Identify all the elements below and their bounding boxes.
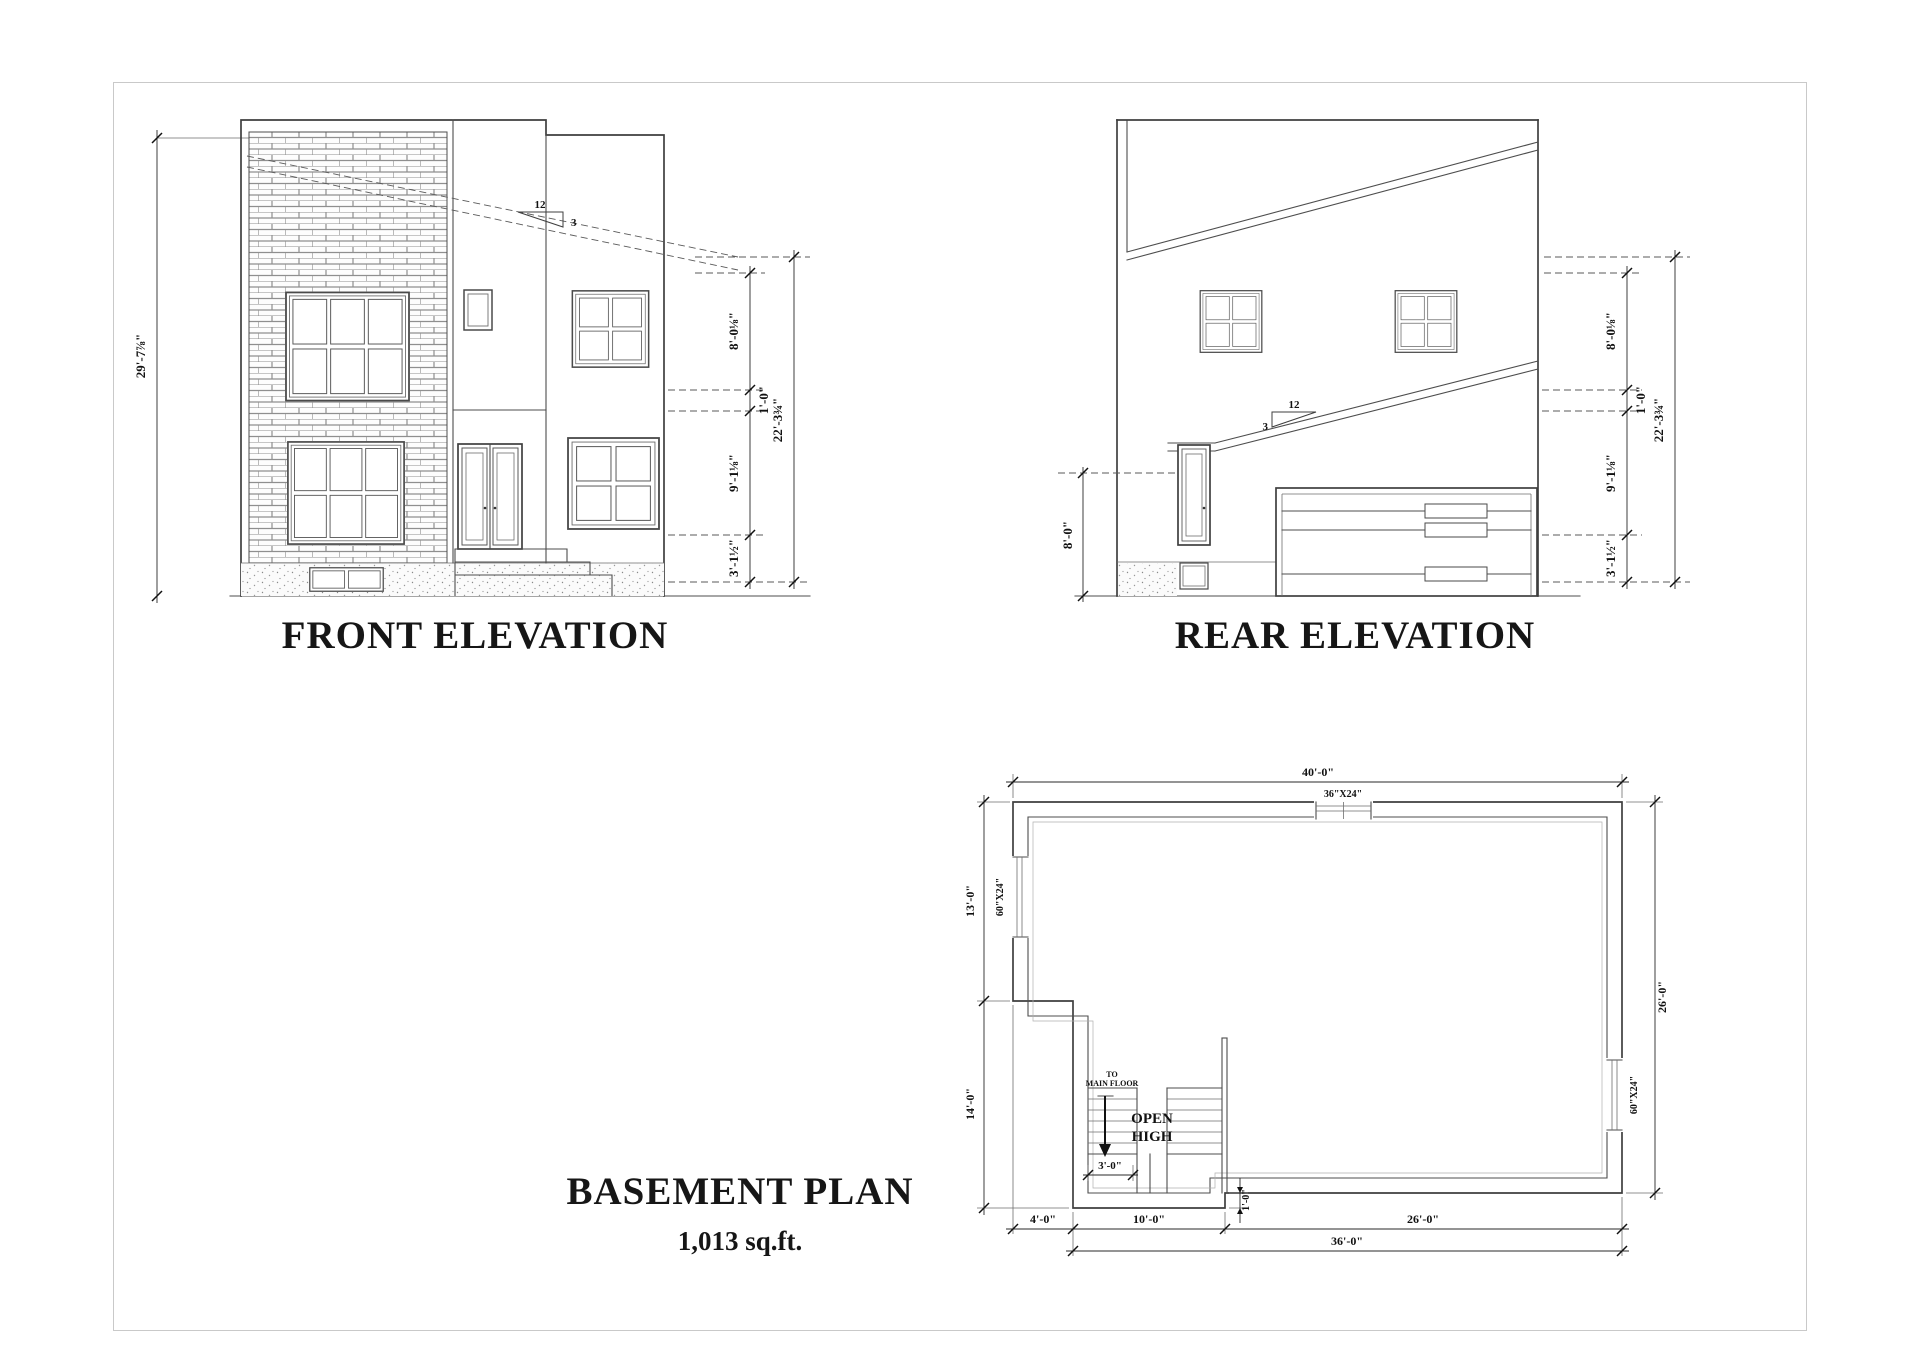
rear-slope-run: 3 xyxy=(1263,421,1269,433)
stairs-to-label-1: TO xyxy=(1106,1070,1117,1079)
front-window-upper-right xyxy=(572,290,650,368)
rear-elevation-drawing: 12 3 8'-0" 8'-0⅛" 1'-0" 9'-1⅛" 3'-1½" 22… xyxy=(1050,80,1750,640)
stairs-open-label-2: HIGH xyxy=(1132,1129,1173,1145)
rear-foundation xyxy=(1118,563,1177,596)
front-slope-rise: 12 xyxy=(535,199,547,211)
basement-area-label: 1,013 sq.ft. xyxy=(440,1228,1040,1255)
stairs-to-label-2: MAIN FLOOR xyxy=(1086,1079,1139,1088)
rear-elevation-title: REAR ELEVATION xyxy=(1030,616,1680,655)
stairs-open-label-1: OPEN xyxy=(1131,1111,1173,1127)
front-dim-overall: 22'-3¾" xyxy=(770,398,785,442)
rear-dim-floor-depth: 1'-0" xyxy=(1633,386,1648,414)
basement-window-top: 36"X24" xyxy=(1314,789,1373,819)
basement-left-lower-dim: 14'-0" xyxy=(963,1088,977,1120)
front-basement-window xyxy=(309,567,384,592)
basement-top-dim: 40'-0" xyxy=(1006,765,1629,798)
basement-bottom-dims: 4'-0" 10'-0" 26'-0" 36'-0" xyxy=(1006,1005,1629,1256)
front-window-lower-6pane xyxy=(287,441,405,545)
basement-depth-dim: 26'-0" xyxy=(1655,981,1669,1013)
front-window-small xyxy=(464,290,492,330)
front-window-upper-6pane xyxy=(285,291,410,401)
front-dim-upper-floor: 8'-0⅛" xyxy=(726,312,741,350)
rear-right-dims: 8'-0⅛" 1'-0" 9'-1⅛" 3'-1½" 22'-3¾" xyxy=(1542,250,1690,589)
rear-door-height-label: 8'-0" xyxy=(1060,521,1075,549)
front-foundation xyxy=(241,563,664,596)
rear-dim-foundation: 3'-1½" xyxy=(1603,539,1618,577)
basement-width-dim: 40'-0" xyxy=(1302,765,1334,779)
front-overall-height-label: 29'-7⅞" xyxy=(133,334,148,378)
basement-window-top-label: 36"X24" xyxy=(1324,789,1362,800)
rear-window-right xyxy=(1395,290,1458,353)
basement-left-upper-dim: 13'-0" xyxy=(963,885,977,917)
front-slope-run: 3 xyxy=(571,217,577,229)
front-overall-height-dim: 29'-7⅞" xyxy=(133,130,265,603)
front-elevation-drawing: 29'-7⅞" 12 3 xyxy=(110,80,870,640)
front-dim-floor-depth: 1'-0" xyxy=(756,386,771,414)
front-entry-door xyxy=(458,444,522,549)
rear-garage-door xyxy=(1276,488,1537,596)
basement-window-right-label: 60"X24" xyxy=(1629,1076,1640,1114)
rear-basement-window xyxy=(1180,563,1208,589)
basement-window-right: 60"X24" xyxy=(1605,1058,1640,1132)
basement-plan-title: BASEMENT PLAN xyxy=(440,1172,1040,1211)
basement-window-left-label: 60"X24" xyxy=(995,878,1006,916)
rear-dim-overall: 22'-3¾" xyxy=(1651,398,1666,442)
basement-bottom-seg3: 26'-0" xyxy=(1407,1212,1439,1226)
basement-bottom-overall: 36'-0" xyxy=(1331,1234,1363,1248)
front-window-lower-right xyxy=(567,437,660,530)
rear-window-left xyxy=(1200,290,1263,353)
front-roof-slope-marker: 12 3 xyxy=(518,199,577,229)
basement-plan-drawing: 36"X24" 60"X24" 60"X24" xyxy=(950,740,1740,1280)
basement-bottom-seg2: 10'-0" xyxy=(1133,1212,1165,1226)
basement-bottom-seg1: 4'-0" xyxy=(1030,1212,1056,1226)
front-dim-foundation: 3'-1½" xyxy=(726,539,741,577)
rear-door xyxy=(1178,445,1210,545)
rear-slope-rise: 12 xyxy=(1289,399,1301,411)
basement-right-dim: 26'-0" xyxy=(1626,795,1669,1200)
stair-width-dim: 3'-0" xyxy=(1098,1160,1122,1172)
basement-offset-dim: 1'-0" xyxy=(1229,1178,1252,1223)
rear-dim-upper-floor: 8'-0⅛" xyxy=(1603,312,1618,350)
basement-window-left: 60"X24" xyxy=(995,856,1029,938)
front-right-dims: 8'-0⅛" 1'-0" 9'-1⅛" 3'-1½" 22'-3¾" xyxy=(668,250,810,589)
basement-offset-label: 1'-0" xyxy=(1241,1189,1252,1211)
basement-stairs: TO MAIN FLOOR OPEN HIGH 3'-0" xyxy=(1083,1038,1227,1193)
front-dim-main-floor: 9'-1⅛" xyxy=(726,454,741,492)
rear-dim-main-floor: 9'-1⅛" xyxy=(1603,454,1618,492)
front-elevation-title: FRONT ELEVATION xyxy=(150,616,800,655)
